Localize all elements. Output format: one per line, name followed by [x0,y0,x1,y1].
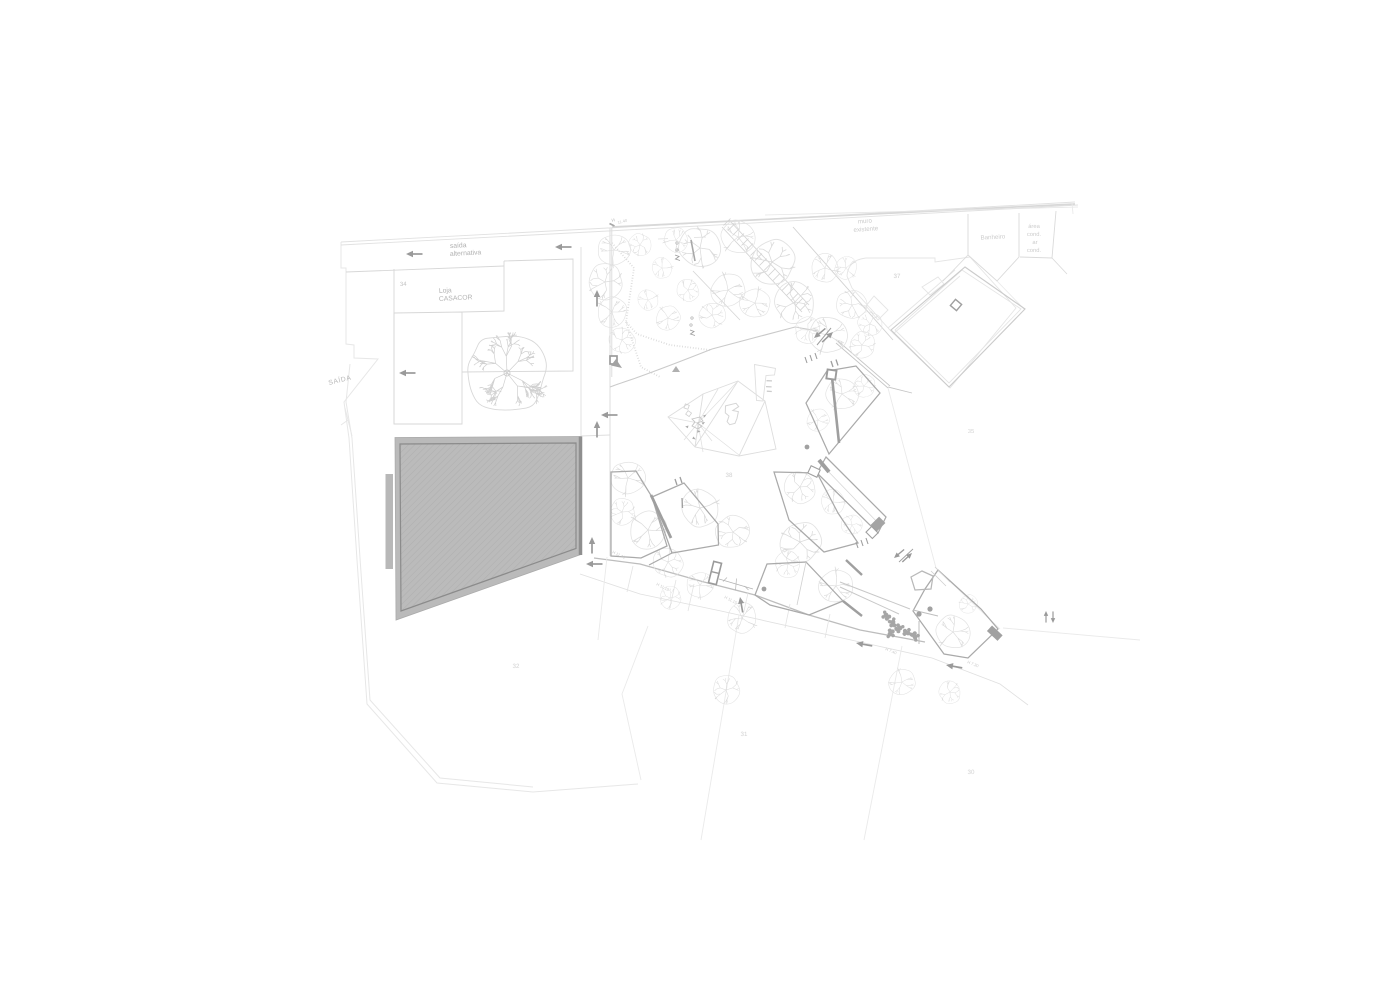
svg-text:cond.: cond. [1027,231,1042,238]
svg-text:alternativa: alternativa [450,249,482,258]
svg-text:31: 31 [741,731,748,738]
svg-text:H: H [611,217,615,223]
svg-text:37: 37 [894,273,901,280]
svg-text:muro: muro [858,217,873,225]
svg-text:área: área [1028,223,1040,230]
svg-text:38: 38 [726,472,733,479]
svg-text:35: 35 [968,428,974,435]
svg-text:CASACOR: CASACOR [439,294,473,303]
svg-text:Banheiro: Banheiro [980,233,1006,241]
svg-text:H 11.40: H 11.40 [612,549,627,560]
svg-text:existente: existente [853,225,879,234]
svg-text:11.40: 11.40 [617,217,628,225]
svg-text:32: 32 [513,663,520,670]
svg-text:ar: ar [1032,240,1037,246]
svg-text:cond.: cond. [1027,247,1042,254]
svg-text:H 7.30: H 7.30 [967,659,981,668]
svg-text:H 11.15: H 11.15 [656,581,671,592]
svg-text:SAÍDA: SAÍDA [328,374,353,387]
svg-text:30: 30 [968,769,975,776]
svg-text:34: 34 [400,281,408,288]
svg-text:saída: saída [450,242,467,250]
svg-text:H 7.40: H 7.40 [885,646,899,655]
svg-text:Loja: Loja [439,287,452,295]
